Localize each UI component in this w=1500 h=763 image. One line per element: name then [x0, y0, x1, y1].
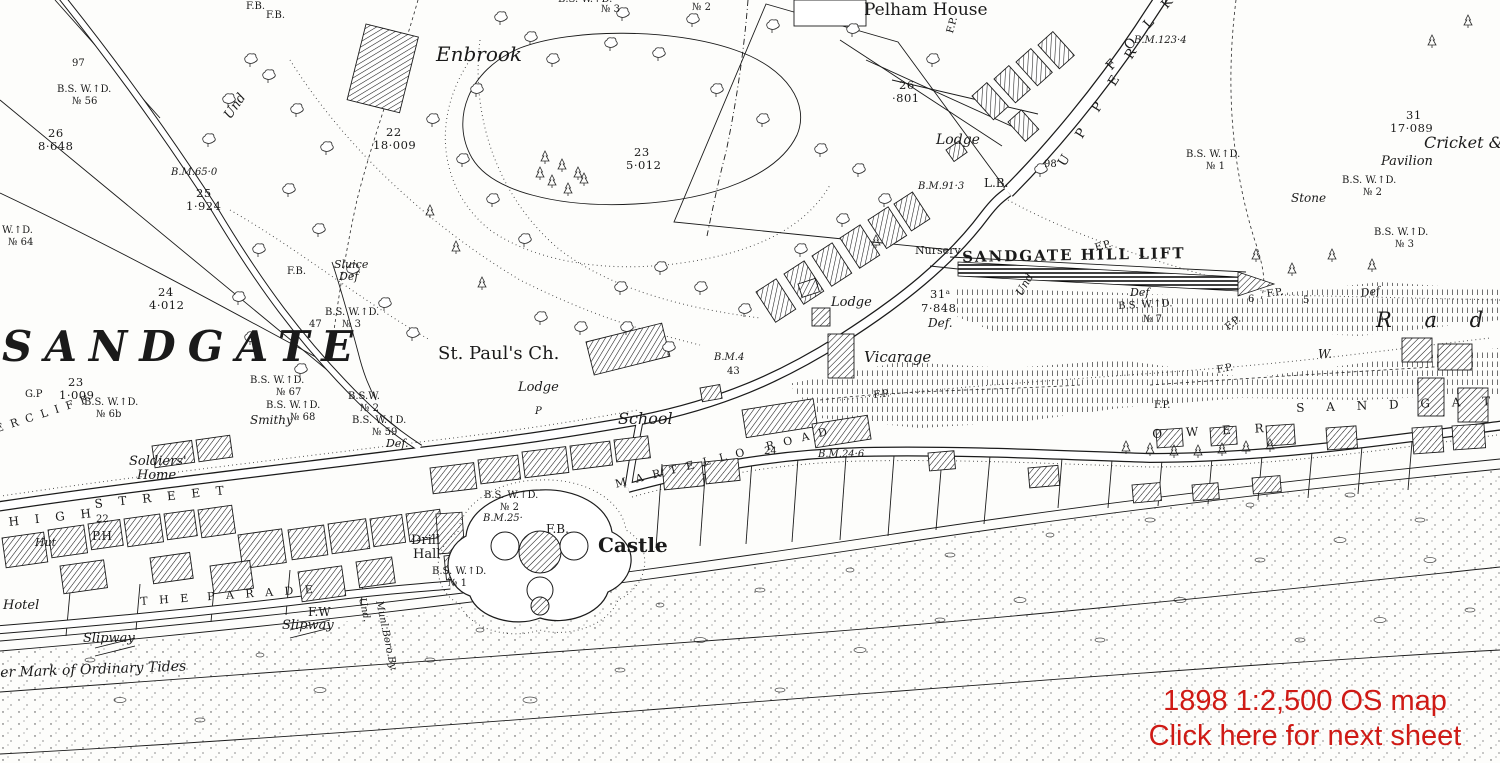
caption-title: 1898 1:2,500 OS map: [1105, 684, 1500, 719]
next-sheet-link[interactable]: Click here for next sheet: [1105, 719, 1500, 754]
map-caption: 1898 1:2,500 OS map Click here for next …: [1105, 684, 1500, 754]
pelham-house-outline: [794, 0, 866, 26]
map-base: [0, 0, 1500, 763]
map-sheet: F.B.F.B.97B.S. W.↑D.№ 56268·648UndB.M.65…: [0, 0, 1500, 763]
